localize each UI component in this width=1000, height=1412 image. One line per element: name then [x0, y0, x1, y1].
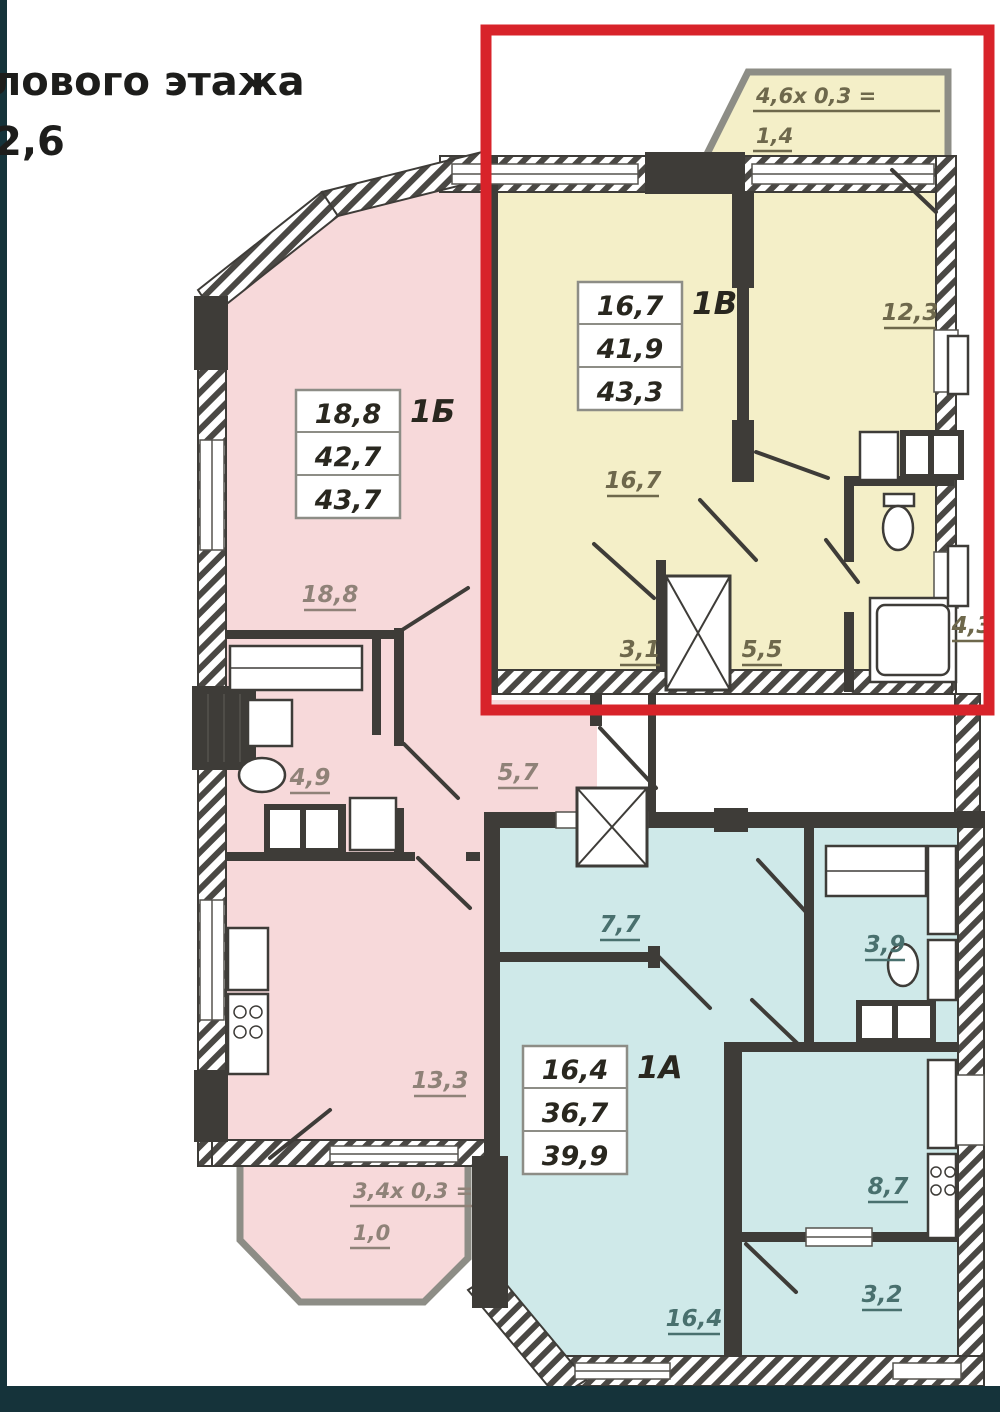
balcony-area: 1,4 [756, 124, 793, 148]
bathtub-icon [928, 846, 956, 934]
wall-segment [844, 476, 854, 562]
washing-machine-door [934, 436, 958, 474]
bathroom-counter-icon [860, 432, 898, 480]
washing-machine-door [898, 1006, 930, 1038]
area-value: 39,9 [542, 1141, 609, 1172]
cabinet-icon [350, 798, 396, 850]
wall-pier [714, 808, 748, 832]
area-value: 43,3 [596, 377, 664, 408]
sink-icon [239, 758, 285, 792]
room-area-label: 3,1 [620, 637, 661, 663]
room-area-label: 3,9 [865, 932, 906, 958]
wall-segment [844, 612, 854, 692]
area-value: 36,7 [542, 1098, 609, 1129]
toilet-tank-icon [884, 494, 914, 506]
area-value: 16,4 [542, 1055, 609, 1086]
room-area-label: 16,4 [666, 1306, 723, 1332]
shelf-icon [948, 546, 968, 606]
cabinet-icon [248, 700, 292, 746]
room-area-label: 5,7 [498, 760, 539, 786]
area-value: 42,7 [314, 442, 382, 473]
window [956, 1075, 984, 1145]
area-value: 43,7 [314, 485, 382, 516]
page-title-line2: 2,6 [0, 119, 65, 165]
area-value: 16,7 [597, 291, 664, 322]
room-area-label: 8,7 [868, 1174, 909, 1200]
wall-segment [724, 1042, 742, 1356]
balcony-formula: 4,6х 0,3 = [755, 84, 876, 108]
room-area-label: 3,2 [862, 1282, 903, 1308]
kitchen-sink-icon [228, 928, 268, 990]
wall-segment [466, 852, 480, 861]
room-area-label: 12,3 [882, 300, 939, 326]
washing-machine-door [862, 1006, 892, 1038]
room-area-label: 18,8 [302, 582, 359, 608]
room-area-label: 5,5 [742, 637, 783, 663]
room-area-label: 4,9 [289, 765, 331, 791]
washing-machine-door [906, 436, 928, 474]
wall-segment [372, 630, 381, 735]
wall-segment [394, 628, 404, 746]
washing-machine-door [270, 810, 300, 848]
wall-pier [472, 1156, 508, 1308]
apartment-type-label: 1А [637, 1050, 683, 1086]
frame-bar-bottom [0, 1386, 1000, 1412]
toilet-icon [883, 506, 913, 550]
room-area-label: 7,7 [600, 912, 641, 938]
bathtub-inner [877, 605, 949, 675]
apartment-type-label: 1Б [410, 394, 455, 430]
page-title-line1: лового этажа [0, 59, 305, 105]
window [893, 1363, 961, 1379]
wall-pier [732, 420, 754, 482]
wall-segment [804, 818, 814, 1048]
floor-plan-page: 16,7 41,9 43,3 1В 12,3 16,7 3,1 5,5 4,3 … [0, 0, 1000, 1412]
frame-bar-left [0, 0, 7, 1412]
shelf-icon [928, 940, 956, 1000]
floor-plan-drawing: 16,7 41,9 43,3 1В 12,3 16,7 3,1 5,5 4,3 … [0, 0, 1000, 1412]
balcony-area: 1,0 [353, 1221, 390, 1245]
door-swing-line [600, 728, 656, 788]
area-value: 41,9 [596, 334, 664, 365]
balcony-formula: 3,4х 0,3 = [353, 1179, 473, 1203]
wall-pier [194, 1070, 228, 1142]
wall-pier [645, 152, 745, 194]
washing-machine-door [306, 810, 338, 848]
apartment-type-label: 1В [692, 286, 737, 322]
wall-segment [500, 952, 658, 962]
shelf-icon [948, 336, 968, 394]
room-area-label: 13,3 [412, 1068, 469, 1094]
kitchen-sink-icon [928, 1060, 956, 1148]
area-value: 18,8 [315, 399, 382, 430]
room-area-label: 16,7 [605, 468, 662, 494]
wall-pier [194, 296, 228, 370]
wall-pier [732, 192, 754, 288]
